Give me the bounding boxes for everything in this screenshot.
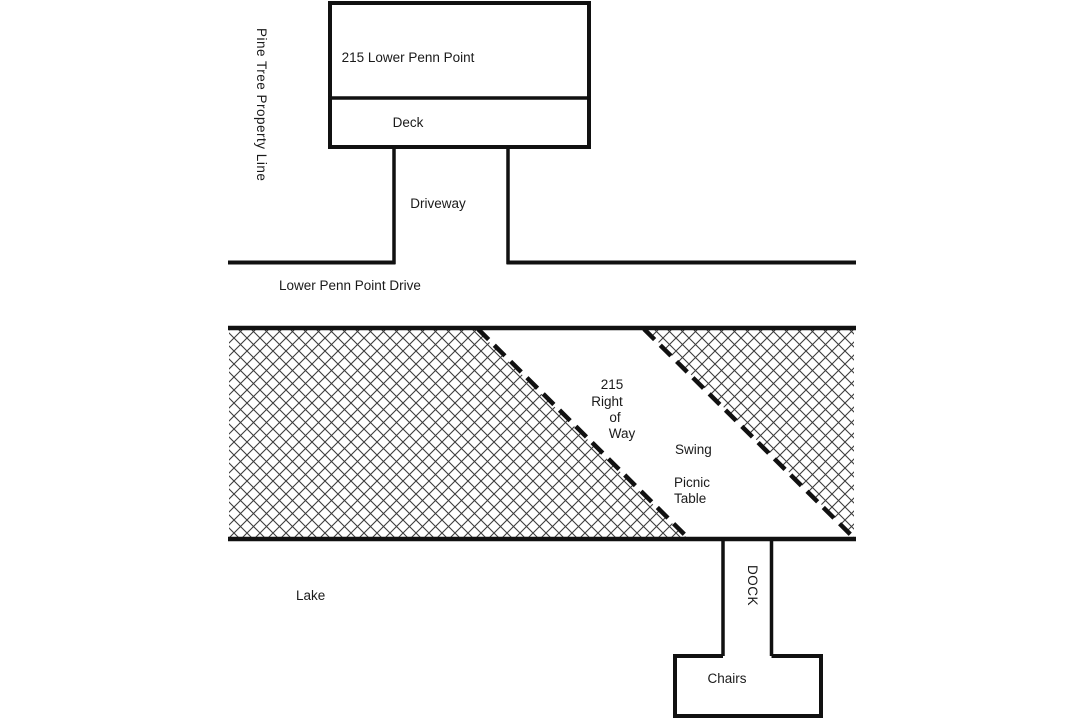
road-label: Lower Penn Point Drive <box>279 278 421 293</box>
right-of-way-label-line-1: 215 <box>601 377 624 392</box>
lake-label: Lake <box>296 588 325 603</box>
swing-label: Swing <box>675 442 712 457</box>
property-sketch: Pine Tree Property Line 215 Lower Penn P… <box>0 0 1080 720</box>
house-outline <box>330 3 589 147</box>
diagram-shapes <box>0 0 1080 720</box>
right-of-way-label-line-3: of <box>609 410 620 425</box>
right-of-way-label-line-2: Right <box>591 394 623 409</box>
dock-label: DOCK <box>745 565 760 606</box>
deck-label: Deck <box>393 115 424 130</box>
picnic-table-label: Picnic Table <box>674 475 710 506</box>
right-of-way-label-line-4: Way <box>609 426 636 441</box>
chairs-platform-outline <box>675 656 821 716</box>
driveway-label: Driveway <box>410 196 466 211</box>
chairs-label: Chairs <box>707 671 746 686</box>
property-line-label: Pine Tree Property Line <box>254 28 269 181</box>
house-label: 215 Lower Penn Point <box>342 50 475 65</box>
